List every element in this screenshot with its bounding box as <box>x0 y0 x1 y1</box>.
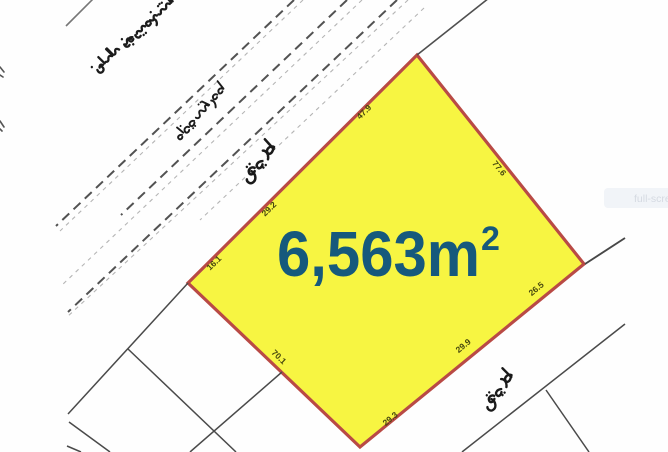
svg-text:6,563m: 6,563m <box>277 218 480 290</box>
svg-text:2: 2 <box>481 220 500 258</box>
svg-text:full-scre: full-scre <box>634 193 668 205</box>
